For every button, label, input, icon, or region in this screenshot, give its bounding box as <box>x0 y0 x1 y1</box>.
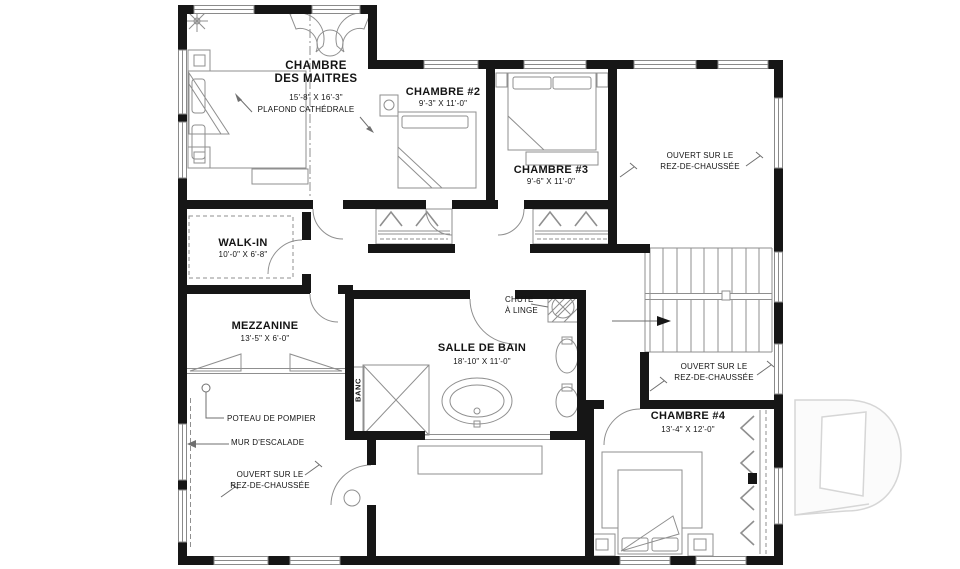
mezzanine-railing <box>187 354 345 374</box>
room-dims-chambre2: 9'-3" X 11'-0" <box>419 99 467 109</box>
room-label-chambre2: CHAMBRE #2 <box>406 86 481 99</box>
window <box>524 61 586 69</box>
window <box>424 61 478 69</box>
nightstand <box>688 534 713 556</box>
window <box>179 424 187 480</box>
room-label-walkin: WALK-IN <box>218 237 267 250</box>
bed <box>618 470 682 554</box>
room-label-master: CHAMBRE DES MAITRES <box>275 60 358 86</box>
nightstand <box>380 95 398 116</box>
open-below-slash <box>757 361 774 375</box>
room-label-mezzanine: MEZZANINE <box>232 320 299 333</box>
label-laundry-chute: CHUTE À LINGE <box>505 295 538 316</box>
window <box>620 557 670 565</box>
bathroom-fixtures <box>353 293 578 474</box>
bed <box>398 112 476 188</box>
pillow <box>192 79 205 113</box>
side-table <box>317 30 343 56</box>
railing <box>425 435 550 440</box>
open-to-below-bottom-left: OUVERT SUR LE REZ-DE-CHAUSSÉE <box>230 470 309 491</box>
stair-railing <box>645 294 772 300</box>
bed <box>508 73 596 150</box>
window <box>179 122 187 178</box>
hanger-chevrons <box>539 212 597 226</box>
window <box>179 50 187 114</box>
bed-fold <box>508 116 544 150</box>
window <box>775 252 783 302</box>
window <box>194 6 254 14</box>
window <box>312 6 360 14</box>
room-dims-chambre3: 9'-6" X 11'-0" <box>527 177 575 187</box>
stairs <box>645 248 772 352</box>
pole-opening <box>344 490 360 506</box>
window <box>179 490 187 542</box>
pillow <box>513 77 551 89</box>
room-dims-master: 15'-8" X 16'-3" <box>289 93 343 103</box>
room-dims-walkin: 10'-0" X 6'-8" <box>219 250 268 260</box>
fire-pole <box>202 384 210 392</box>
window <box>634 61 696 69</box>
open-to-below-top-right: OUVERT SUR LE REZ-DE-CHAUSSÉE <box>660 151 739 172</box>
note-cathedral-ceiling: PLAFOND CATHÉDRALE <box>258 105 355 116</box>
window <box>775 98 783 168</box>
nightstand <box>496 73 507 87</box>
window <box>290 557 340 565</box>
room-label-bathroom: SALLE DE BAIN <box>438 342 526 355</box>
armchair <box>290 13 324 52</box>
dresser <box>252 169 308 184</box>
open-to-below-mid-right: OUVERT SUR LE REZ-DE-CHAUSSÉE <box>674 362 753 383</box>
pillow <box>402 116 468 128</box>
window <box>214 557 268 565</box>
toilet-tank <box>562 337 572 344</box>
label-climbing-wall: MUR D'ESCALADE <box>231 438 304 449</box>
master-bedroom-furniture <box>186 10 370 198</box>
room-label-chambre4: CHAMBRE #4 <box>651 410 726 423</box>
window <box>696 557 746 565</box>
label-fire-pole: POTEAU DE POMPIER <box>227 414 316 425</box>
room-dims-bathroom: 18'-10" X 11'-0" <box>453 357 511 367</box>
hanger-chevrons <box>380 212 438 226</box>
window <box>775 344 783 394</box>
window <box>775 468 783 524</box>
label-bench: BANC <box>354 378 363 402</box>
nightstand <box>597 73 608 87</box>
nightstand <box>188 147 210 168</box>
bed-fold <box>398 147 442 188</box>
room-dims-chambre4: 13'-4" X 12'-0" <box>661 425 715 435</box>
window <box>718 61 768 69</box>
room-label-chambre3: CHAMBRE #3 <box>514 164 589 177</box>
armchair <box>336 13 370 52</box>
room-dims-mezzanine: 13'-5" X 6'-0" <box>241 334 290 344</box>
open-below-slash <box>746 152 763 166</box>
nightstand <box>188 50 210 71</box>
open-below-slash <box>650 377 667 391</box>
closets <box>376 209 612 244</box>
open-below-slash <box>620 163 637 177</box>
watermark-d-logo <box>795 400 901 515</box>
floor-plan: CHAMBRE DES MAITRES 15'-8" X 16'-3" PLAF… <box>0 0 960 569</box>
chambre3-furniture <box>496 73 608 165</box>
pillow <box>553 77 591 89</box>
ledge <box>418 446 542 474</box>
